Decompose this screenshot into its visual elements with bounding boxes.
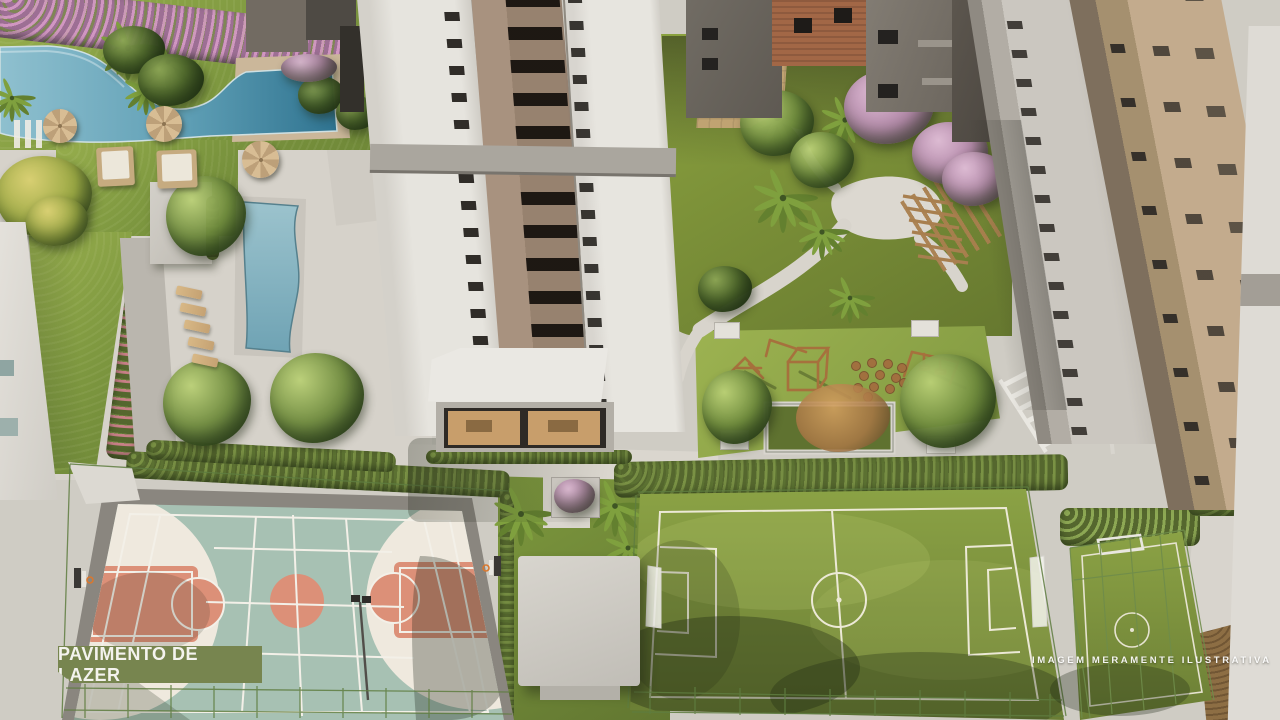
- left-building-window: [0, 360, 14, 376]
- top-building: [246, 0, 308, 52]
- title-banner: PAVIMENTO DE LAZER: [58, 646, 262, 683]
- garden-top-building: [686, 0, 782, 118]
- brick-building: [772, 0, 872, 66]
- tower-bridge-band: [370, 144, 676, 177]
- pool-umbrella: [146, 106, 182, 142]
- kiosk-roof: [518, 556, 640, 686]
- pool-umbrella: [43, 109, 77, 143]
- daybed: [96, 146, 135, 187]
- tree-planter: [714, 322, 740, 339]
- daybed: [156, 149, 197, 188]
- tree-planter: [911, 320, 939, 337]
- pool-umbrella: [242, 141, 279, 178]
- soccer-goal-right: [1030, 556, 1047, 627]
- soccer-field: [600, 487, 1090, 720]
- amenity-lounge: [436, 402, 614, 452]
- leisure-deck-render: PAVIMENTO DE LAZER IMAGEM MERAMENTE ILUS…: [0, 0, 1280, 720]
- disclaimer-text: IMAGEM MERAMENTE ILUSTRATIVA: [1032, 655, 1272, 666]
- mini-soccer-field: [1050, 530, 1214, 720]
- left-building-window: [0, 418, 18, 436]
- garden-top-building: [866, 0, 966, 112]
- tower-base-hedge: [426, 450, 632, 464]
- banner-label: PAVIMENTO DE LAZER: [58, 644, 262, 686]
- tower-base-roof: [428, 348, 608, 406]
- pool-chairs: [14, 120, 44, 148]
- soccer-goal-left: [646, 566, 661, 628]
- kiosk-step: [540, 686, 620, 700]
